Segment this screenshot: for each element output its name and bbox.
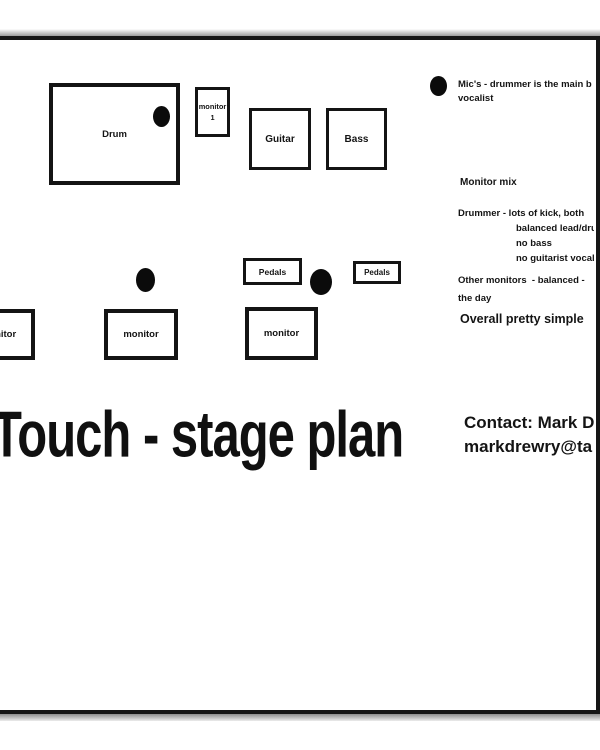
page-right-border bbox=[596, 36, 600, 714]
monitor-mid-label: monitor bbox=[123, 329, 158, 340]
bass-label: Bass bbox=[345, 134, 369, 145]
page-top-border bbox=[0, 36, 600, 40]
drum-label: Drum bbox=[102, 129, 127, 140]
other-monitors-line1: Other monitors - balanced - bbox=[458, 272, 594, 290]
stage-plan-page: Drum monitor 1 Guitar Bass Pedals Pedals… bbox=[0, 0, 600, 750]
pedals-right-box: Pedals bbox=[353, 261, 401, 284]
monitor1-label: monitor bbox=[199, 101, 227, 112]
drum-box: Drum bbox=[49, 83, 180, 185]
legend-mic-dot-icon bbox=[430, 76, 447, 96]
drummer-mix-detail: no bass bbox=[516, 236, 594, 251]
guitar-label: Guitar bbox=[265, 134, 294, 145]
page-title: Touch - stage plan bbox=[0, 398, 403, 472]
other-monitors-notes: Other monitors - balanced - the day bbox=[458, 272, 594, 308]
overall-summary: Overall pretty simple bbox=[460, 312, 584, 326]
monitor-left-label: monitor bbox=[0, 329, 16, 340]
center-mic-dot-icon bbox=[310, 269, 332, 295]
page-bottom-shadow bbox=[0, 714, 600, 721]
drum-mic-dot-icon bbox=[153, 106, 170, 127]
contact-name: Contact: Mark D bbox=[464, 411, 596, 435]
mic-legend-line1: Mic's - drummer is the main b bbox=[458, 78, 594, 92]
mic-legend-text: Mic's - drummer is the main b vocalist bbox=[458, 78, 594, 106]
drummer-mix-detail: no guitarist vocal bbox=[516, 251, 594, 266]
pedals-left-box: Pedals bbox=[243, 258, 302, 285]
monitor-left-box: monitor bbox=[0, 309, 35, 360]
monitor-mid-box: monitor bbox=[104, 309, 178, 360]
monitor-mix-heading: Monitor mix bbox=[460, 177, 517, 188]
monitor1-box: monitor 1 bbox=[195, 87, 230, 137]
mic-legend-line2: vocalist bbox=[458, 92, 594, 106]
pedals-right-label: Pedals bbox=[364, 268, 390, 277]
left-mic-dot-icon bbox=[136, 268, 155, 292]
monitor-right-box: monitor bbox=[245, 307, 318, 360]
guitar-box: Guitar bbox=[249, 108, 311, 170]
contact-block: Contact: Mark D markdrewry@ta bbox=[464, 411, 596, 458]
contact-email: markdrewry@ta bbox=[464, 435, 596, 459]
drummer-mix-line: Drummer - lots of kick, both bbox=[458, 206, 594, 221]
drummer-mix-detail: balanced lead/dru bbox=[516, 221, 594, 236]
other-monitors-line2: the day bbox=[458, 290, 594, 308]
monitor-right-label: monitor bbox=[264, 328, 299, 339]
page-top-shadow bbox=[0, 29, 600, 36]
drummer-mix-notes: Drummer - lots of kick, both balanced le… bbox=[458, 206, 594, 266]
monitor1-number: 1 bbox=[210, 112, 214, 123]
pedals-left-label: Pedals bbox=[259, 267, 286, 277]
bass-box: Bass bbox=[326, 108, 387, 170]
